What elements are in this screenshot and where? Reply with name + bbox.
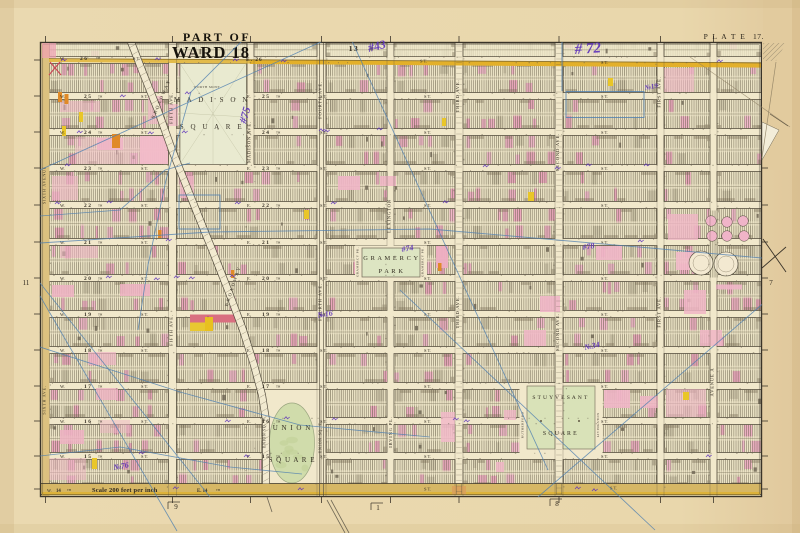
svg-text:RUTHERFORD: RUTHERFORD [521,412,525,439]
svg-text:S T.: S T. [133,56,140,61]
svg-text:S T.: S T. [601,130,608,135]
svg-text:W.: W. [60,312,65,317]
svg-text:S T.: S T. [424,94,431,99]
svg-text:UNION SQ. E.: UNION SQ. E. [319,421,323,454]
svg-text:17: 17 [84,384,92,390]
svg-text:TH: TH [276,94,281,98]
svg-text:P A R K: P A R K [378,268,403,275]
svg-text:GRAMERCY PK.: GRAMERCY PK. [421,247,425,277]
svg-text:S T.: S T. [141,166,148,171]
svg-text:22: 22 [84,203,92,209]
svg-text:THIRD AVE.: THIRD AVE. [455,80,460,113]
svg-text:W.: W. [60,94,65,99]
svg-text:SIXTH AVE.: SIXTH AVE. [42,385,47,414]
svg-text:11: 11 [23,279,30,287]
svg-text:E.: E. [247,312,251,317]
svg-text:AVENUE A: AVENUE A [710,368,715,397]
svg-text:S T.: S T. [601,384,608,389]
svg-text:TH: TH [276,276,281,280]
svg-text:S T.: S T. [141,454,148,459]
svg-text:S T.: S T. [320,166,327,171]
svg-text:FIRST AVE.: FIRST AVE. [657,76,662,107]
svg-text:S T.: S T. [601,203,608,208]
svg-text:IRVING PL.: IRVING PL. [388,416,393,447]
svg-text:S T.: S T. [601,94,608,99]
svg-text:TH: TH [98,348,103,352]
svg-text:24: 24 [262,130,270,136]
svg-text:G R A M E R C Y: G R A M E R C Y [363,255,418,262]
svg-text:W.: W. [60,166,65,171]
svg-text:TH: TH [96,56,101,60]
svg-text:S T.: S T. [141,203,148,208]
svg-text:TH: TH [276,130,281,134]
svg-text:19: 19 [84,312,92,318]
svg-text:W.: W. [60,203,65,208]
svg-text:S T.: S T. [601,454,608,459]
svg-text:TH: TH [98,203,103,207]
svg-text:M A D I S O N: M A D I S O N [174,96,250,104]
svg-text:LIVINGSTON: LIVINGSTON [596,413,600,438]
svg-text:14: 14 [56,489,61,494]
svg-text:TH: TH [98,94,103,98]
svg-text:LEXINGTON: LEXINGTON [387,199,392,233]
svg-text:SIXTH AVENUE: SIXTH AVENUE [42,166,47,204]
svg-text:S T.: S T. [424,130,431,135]
svg-text:FIFTH AVE.: FIFTH AVE. [169,314,174,346]
svg-text:S T.: S T. [601,419,608,424]
svg-text:S T.: S T. [320,276,327,281]
svg-text:26: 26 [80,56,88,62]
svg-text:S T.: S T. [601,348,608,353]
svg-text:FIFTH AVE.: FIFTH AVE. [169,92,174,124]
svg-text:8: 8 [555,500,559,508]
svg-text:S T.: S T. [424,166,431,171]
svg-text:TH: TH [276,454,281,458]
svg-text:W.: W. [60,240,65,245]
svg-text:W.: W. [60,276,65,281]
svg-text:TH: TH [276,348,281,352]
svg-text:GRAMERCY PK.: GRAMERCY PK. [356,247,360,277]
svg-text:S T.: S T. [424,419,431,424]
svg-text:S T.: S T. [424,240,431,245]
svg-text:25: 25 [84,94,92,100]
svg-text:S T.: S T. [320,203,327,208]
svg-text:S T.: S T. [424,276,431,281]
svg-text:S T.: S T. [320,454,327,459]
svg-text:15: 15 [84,454,92,460]
svg-text:1: 1 [376,504,380,512]
svg-text:21: 21 [84,240,92,246]
svg-text:S T.: S T. [141,419,148,424]
svg-text:W.: W. [47,488,52,493]
svg-text:20: 20 [84,276,92,282]
svg-text:SECOND AVE.: SECOND AVE. [555,133,560,171]
svg-text:S T.: S T. [601,166,608,171]
svg-text:FIRST AVE.: FIRST AVE. [657,296,662,327]
svg-text:FOURTH AVE.: FOURTH AVE. [318,81,323,119]
svg-text:# 72: # 72 [573,40,602,58]
svg-text:E.: E. [247,94,251,99]
svg-text:P L A T E: P L A T E [704,32,747,41]
svg-text:18: 18 [84,348,92,354]
svg-text:23: 23 [84,166,92,172]
svg-text:18: 18 [262,348,270,354]
svg-text:THIRD AVE.: THIRD AVE. [455,296,460,329]
svg-text:S T.: S T. [424,384,431,389]
svg-text:W.: W. [60,419,65,424]
svg-text:E.: E. [247,166,251,171]
svg-text:TH: TH [98,276,103,280]
svg-text:TH: TH [98,312,103,316]
svg-text:S T.: S T. [141,276,148,281]
svg-text:TH: TH [98,384,103,388]
svg-text:24: 24 [84,130,92,136]
svg-text:15: 15 [262,454,270,460]
svg-text:E.: E. [247,348,251,353]
svg-text:S Q U A R E: S Q U A R E [543,431,577,437]
svg-text:TH: TH [98,240,103,244]
svg-text:S T.: S T. [141,130,148,135]
svg-text:PART OF: PART OF [183,30,251,44]
svg-text:MADISON AVE.: MADISON AVE. [247,121,252,163]
svg-text:S T.: S T. [141,348,148,353]
svg-text:S T.: S T. [320,130,327,135]
svg-text:E.: E. [247,384,251,389]
svg-text:E.: E. [247,419,251,424]
svg-text:W.: W. [60,348,65,353]
svg-text:E.: E. [247,276,251,281]
svg-text:Scale 200 feet per inch: Scale 200 feet per inch [92,487,158,494]
svg-text:E.: E. [247,203,251,208]
svg-text:16: 16 [84,419,92,425]
svg-text:7: 7 [769,279,773,287]
svg-text:S T.: S T. [320,240,327,245]
svg-text:SECOND AVE.: SECOND AVE. [555,313,560,351]
svg-text:S T.: S T. [424,348,431,353]
svg-text:S T.: S T. [424,487,431,492]
svg-text:S T.: S T. [424,454,431,459]
svg-text:19: 19 [262,312,270,318]
svg-text:S T.: S T. [141,94,148,99]
svg-text:TH: TH [98,454,103,458]
svg-text:UNION SQ. W.: UNION SQ. W. [263,416,267,448]
svg-text:S T.: S T. [141,240,148,245]
svg-text:22: 22 [262,203,270,209]
svg-text:9: 9 [174,503,178,511]
svg-text:TH: TH [276,203,281,207]
svg-text:E.: E. [247,240,251,245]
svg-text:17: 17 [262,384,270,390]
svg-text:S T.: S T. [141,384,148,389]
svg-text:20: 20 [262,276,270,282]
svg-text:W.: W. [60,454,65,459]
svg-text:S T.: S T. [141,312,148,317]
svg-text:TH: TH [98,166,103,170]
svg-text:S T.: S T. [320,384,327,389]
svg-text:TH: TH [276,240,281,244]
svg-text:TH: TH [276,166,281,170]
svg-text:W.: W. [60,384,65,389]
svg-text:TH: TH [98,419,103,423]
svg-text:23: 23 [262,166,270,172]
svg-text:TH: TH [276,384,281,388]
svg-text:S Q U A R E: S Q U A R E [180,123,245,131]
svg-text:21: 21 [262,240,270,246]
svg-text:S T.: S T. [601,276,608,281]
svg-text:25: 25 [262,94,270,100]
svg-text:TH: TH [98,130,103,134]
svg-text:17.: 17. [753,32,764,41]
svg-text:S T.: S T. [420,59,427,64]
svg-text:S T.: S T. [320,348,327,353]
svg-text:S T.: S T. [601,60,608,65]
svg-text:S T.: S T. [601,312,608,317]
svg-text:W.: W. [60,130,65,135]
svg-text:TH: TH [276,312,281,316]
